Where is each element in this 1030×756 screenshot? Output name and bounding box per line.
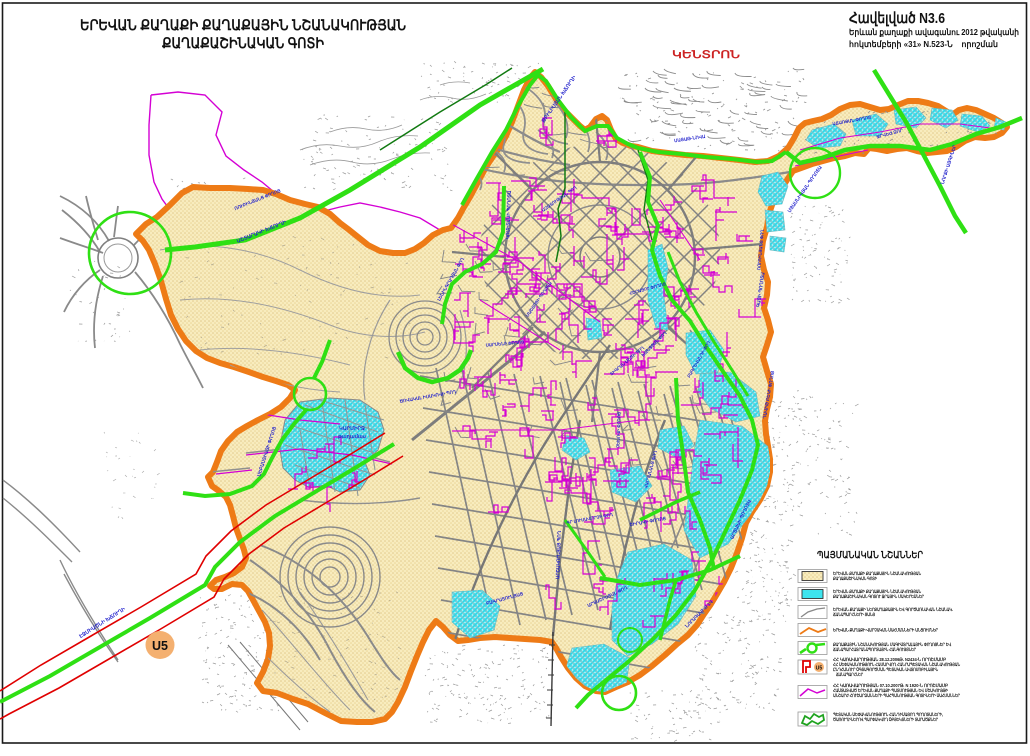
svg-text:ՔԱՂԱՔԱՇԻՆԱԿԱՆ ԳՈՏԻ: ՔԱՂԱՔԱՇԻՆԱԿԱՆ ԳՈՏԻ [833, 576, 877, 581]
svg-text:ՔԱՂԱՔԱՇԻՆԱԿԱՆ ԳՈՏԻ: ՔԱՂԱՔԱՇԻՆԱԿԱՆ ԳՈՏԻ [162, 36, 325, 52]
svg-text:ՃԱՆԱՊԱՐՀՆԵՐԻ ՑԱՆՑ: ՃԱՆԱՊԱՐՀՆԵՐԻ ՑԱՆՑ [833, 612, 875, 617]
svg-text:Հավելված N3.6: Հավելված N3.6 [849, 10, 945, 27]
svg-text:ԿԵՆՏՐՈՆ: ԿԵՆՏՐՈՆ [672, 49, 740, 61]
svg-text:ՃԱՆԱՊԱՐՀՆԵՐ: ՃԱՆԱՊԱՐՀՆԵՐ [836, 672, 863, 677]
svg-text:թաղամաս: թաղամաս [338, 434, 366, 440]
svg-text:ԱՆՇԱՐԺ ՀՈՒՇԱՐՁԱՆՆԵՐԻ ՊԱՀՊԱՆՈՒԹ: ԱՆՇԱՐԺ ՀՈՒՇԱՐՁԱՆՆԵՐԻ ՊԱՀՊԱՆՈՒԹՅԱՆ ԳՈՏԻՆԵ… [833, 693, 960, 698]
svg-text:ՊԱՅՄԱՆԱԿԱՆ ՆՇԱՆՆԵՐ: ՊԱՅՄԱՆԱԿԱՆ ՆՇԱՆՆԵՐ [817, 550, 923, 561]
svg-text:ԿԱՐՄԻՐՋ: ԿԱՐՄԻՐՋ [339, 426, 365, 432]
svg-text:U5: U5 [152, 639, 168, 653]
svg-text:ԵՐԵՎԱՆ ՔԱՂԱՔԻ ՎԱՐՉԱԿԱՆ ՍԱՀՄԱՆՆ: ԵՐԵՎԱՆ ՔԱՂԱՔԻ ՎԱՐՉԱԿԱՆ ՍԱՀՄԱՆՆԵՐԻ ԱՆՑՈՒՄ… [833, 628, 938, 633]
svg-text:ԾԱՌՈՒՂԻՆԵՐՈՎ ՊԱՐՓԱԿՎՈՂ ՕԲՅԵԿՏՆ: ԾԱՌՈՒՂԻՆԵՐՈՎ ՊԱՐՓԱԿՎՈՂ ՕԲՅԵԿՏՆԵՐԻ ՏԱՐԱԾՔ… [833, 717, 938, 722]
svg-text:ԵՐԵՎԱՆ ՔԱՂԱՔԻ ՔԱՂԱՔԱՅԻՆ ՆՇԱՆԱԿ: ԵՐԵՎԱՆ ՔԱՂԱՔԻ ՔԱՂԱՔԱՅԻՆ ՆՇԱՆԱԿՈՒԹՅԱՆ [80, 18, 406, 34]
svg-text:հոկտեմբերի «31» N.523-Ն որ: հոկտեմբերի «31» N.523-Ն որոշման [849, 38, 999, 50]
svg-text:ՔԱՂԱՔԱՇԻՆԱԿԱՆ ԳՈՏՈՒ ՋՐԱՅԻՆ ՄԱԿ: ՔԱՂԱՔԱՇԻՆԱԿԱՆ ԳՈՏՈՒ ՋՐԱՅԻՆ ՄԱԿԵՐԵՍՆԵՐ [833, 594, 924, 599]
svg-text:U5: U5 [816, 665, 823, 671]
svg-text:ՃԱՆԱՊԱՐՀԱՏՐԱՆՍՊՈՐՏԱՅԻՆ ՀԱՆԳՈՒՅ: ՃԱՆԱՊԱՐՀԱՏՐԱՆՍՊՈՐՏԱՅԻՆ ՀԱՆԳՈՒՅՑՆԵՐ [833, 647, 916, 652]
svg-text:Երևան քաղաքի ավագանու 2012 թվա: Երևան քաղաքի ավագանու 2012 թվականի [849, 27, 1019, 38]
